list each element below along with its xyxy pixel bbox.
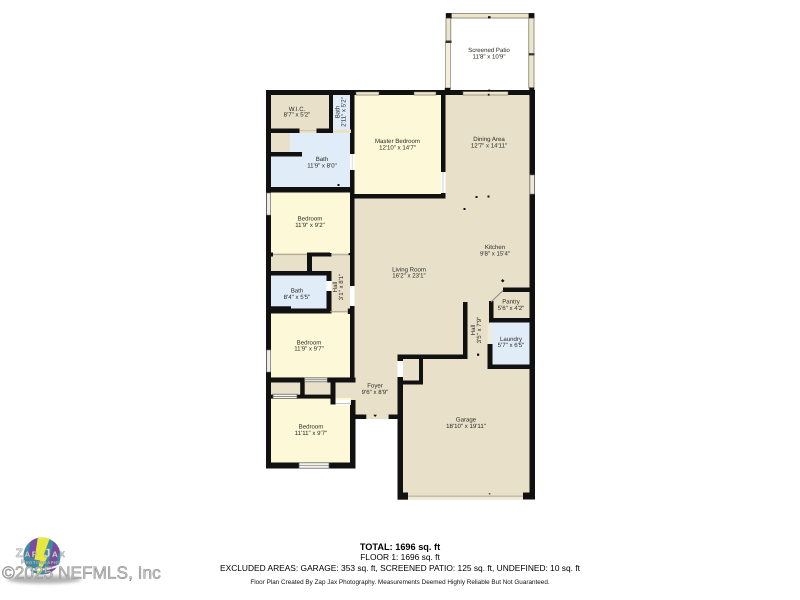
- svg-text:11'9" x 9'7": 11'9" x 9'7": [294, 346, 324, 353]
- svg-text:16'2" x 23'1": 16'2" x 23'1": [392, 273, 425, 280]
- svg-text:12'7" x 14'11": 12'7" x 14'11": [471, 142, 507, 149]
- svg-text:9'6" x 8'9": 9'6" x 8'9": [362, 389, 389, 396]
- svg-text:8'7" x 5'2": 8'7" x 5'2": [284, 112, 311, 119]
- svg-text:9'8" x 15'4": 9'8" x 15'4": [480, 250, 510, 257]
- svg-text:3'1" x 8'1": 3'1" x 8'1": [338, 274, 345, 301]
- svg-text:11'9" x 9'2": 11'9" x 9'2": [295, 222, 325, 229]
- svg-text:5'6" x 4'2": 5'6" x 4'2": [498, 305, 525, 312]
- svg-text:8'4" x 5'5": 8'4" x 5'5": [284, 294, 311, 301]
- svg-text:11'8" x 10'9": 11'8" x 10'9": [473, 54, 506, 61]
- svg-text:11'9" x 8'0": 11'9" x 8'0": [307, 162, 337, 169]
- svg-text:3'5" x 7'9": 3'5" x 7'9": [476, 317, 483, 344]
- svg-text:18'10" x 19'11": 18'10" x 19'11": [446, 423, 486, 430]
- svg-text:2'11" x 5'2": 2'11" x 5'2": [341, 97, 348, 127]
- svg-text:5'7" x 6'5": 5'7" x 6'5": [498, 342, 525, 349]
- svg-text:11'11" x 9'7": 11'11" x 9'7": [295, 430, 328, 437]
- svg-text:12'10" x 14'7": 12'10" x 14'7": [379, 144, 416, 151]
